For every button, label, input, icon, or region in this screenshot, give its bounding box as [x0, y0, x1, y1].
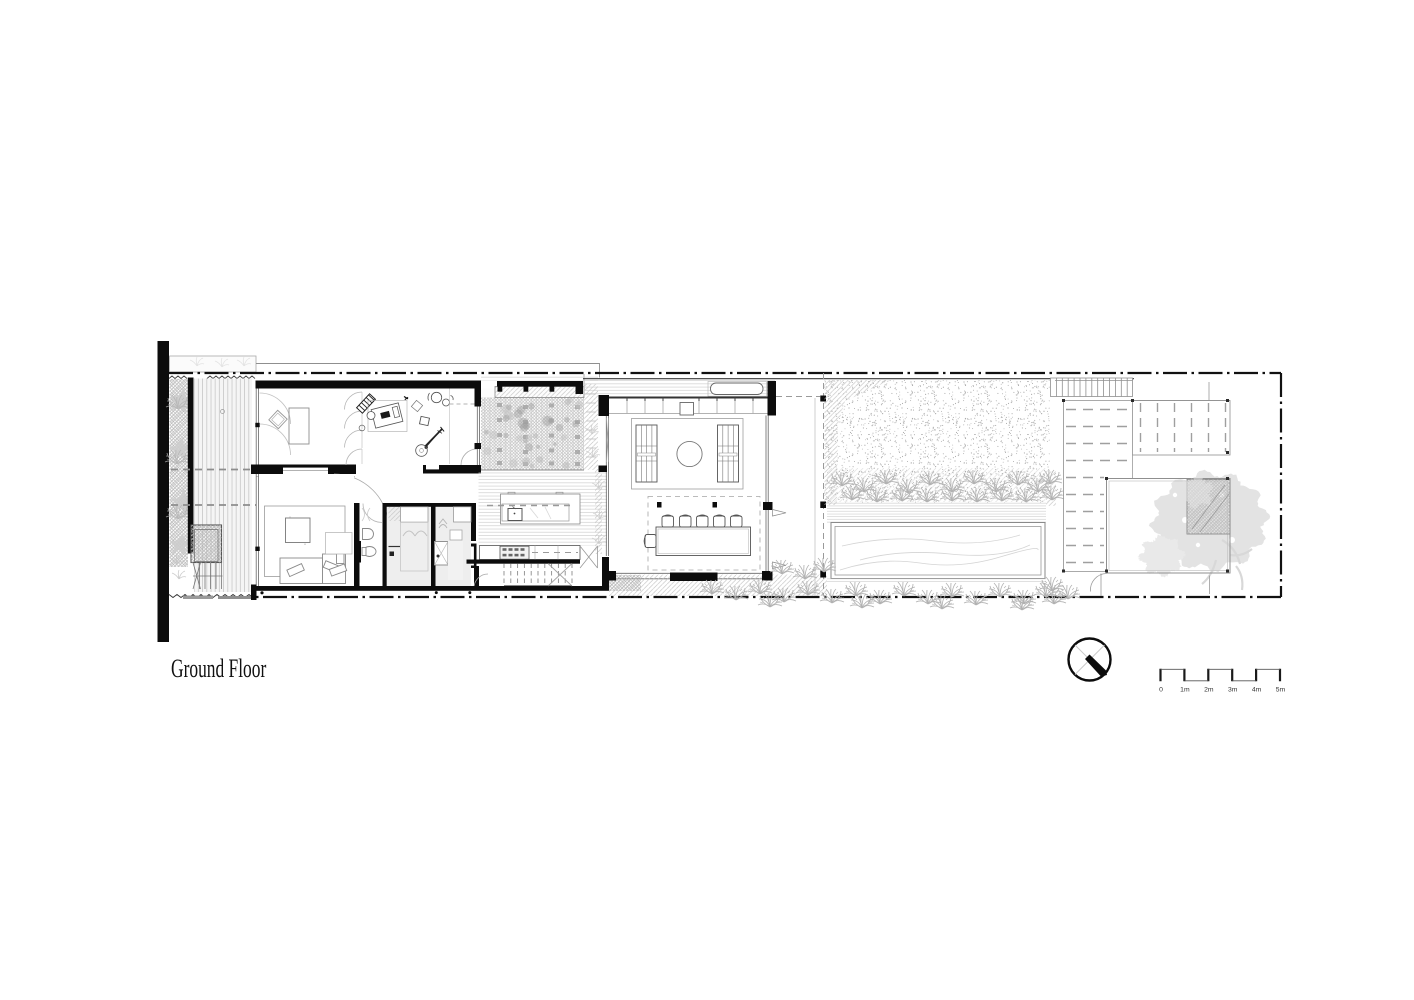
svg-text:3m: 3m: [1228, 687, 1238, 694]
svg-text:2m: 2m: [1204, 687, 1214, 694]
svg-text:5m: 5m: [1276, 687, 1286, 694]
svg-text:4m: 4m: [1252, 687, 1262, 694]
svg-text:1m: 1m: [1180, 687, 1190, 694]
svg-text:Ground Floor: Ground Floor: [171, 654, 267, 683]
svg-text:0: 0: [1159, 687, 1163, 694]
